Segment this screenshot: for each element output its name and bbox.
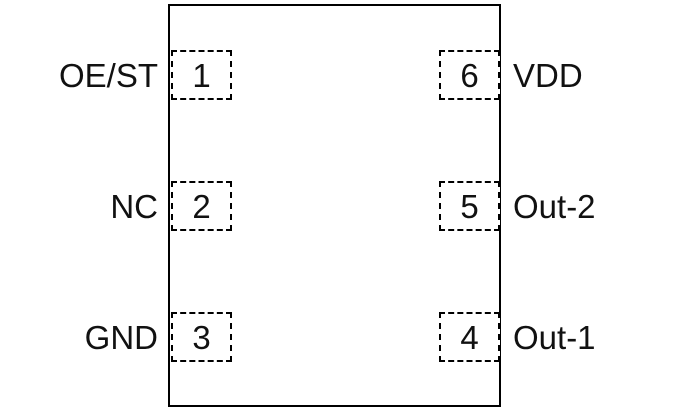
pin-3-box: 3 bbox=[171, 312, 232, 362]
pin-3-number: 3 bbox=[192, 321, 210, 354]
pin-5-box: 5 bbox=[439, 181, 500, 231]
pinout-diagram: OE/ST 1 NC 2 GND 3 6 VDD 5 Out-2 4 Out-1 bbox=[0, 0, 674, 412]
pin-1-box: 1 bbox=[171, 50, 232, 100]
pin-4-number: 4 bbox=[460, 321, 478, 354]
pin-5-label: Out-2 bbox=[513, 181, 673, 231]
pin-4-label: Out-1 bbox=[513, 312, 673, 362]
pin-1-label: OE/ST bbox=[0, 50, 158, 100]
pin-2-number: 2 bbox=[192, 190, 210, 223]
pin-2-label: NC bbox=[0, 181, 158, 231]
pin-6-label: VDD bbox=[513, 50, 673, 100]
pin-6-box: 6 bbox=[439, 50, 500, 100]
pin-2-box: 2 bbox=[171, 181, 232, 231]
pin-6-number: 6 bbox=[460, 59, 478, 92]
pin-4-box: 4 bbox=[439, 312, 500, 362]
pin-5-number: 5 bbox=[460, 190, 478, 223]
pin-1-number: 1 bbox=[192, 59, 210, 92]
pin-3-label: GND bbox=[0, 312, 158, 362]
